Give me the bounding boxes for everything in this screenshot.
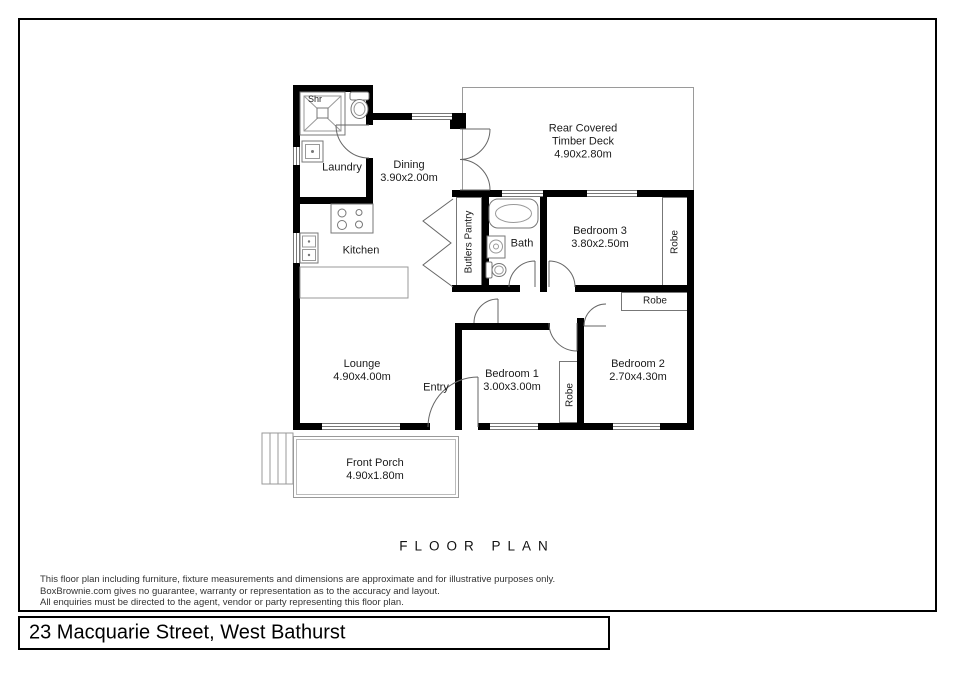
floor-plan-page: Shr Laundry Dining 3.90x2.00m Rear Cover… <box>0 0 955 675</box>
bedroom1-label: Bedroom 1 3.00x3.00m <box>483 368 540 394</box>
entry-label: Entry <box>423 382 449 395</box>
wall-segment <box>478 423 490 430</box>
laundry-label: Laundry <box>322 162 362 175</box>
lounge-label: Lounge 4.90x4.00m <box>333 358 390 384</box>
wall-segment <box>660 423 694 430</box>
butlers-pantry-label: Butlers Pantry <box>464 211 475 274</box>
wall-segment <box>575 285 694 292</box>
bedroom2-label: Bedroom 2 2.70x4.30m <box>609 358 666 384</box>
wall-segment <box>293 286 318 293</box>
wall-segment <box>455 323 550 330</box>
robe-bed1-label: Robe <box>565 383 576 407</box>
wall-segment <box>293 85 300 147</box>
disclaimer-line: BoxBrownie.com gives no guarantee, warra… <box>40 586 555 598</box>
robe-bed2-label: Robe <box>643 295 667 308</box>
page-title: FLOOR PLAN <box>399 539 555 554</box>
wall-segment <box>370 113 412 120</box>
wall-segment <box>540 197 547 292</box>
window <box>490 423 538 430</box>
disclaimer-line: All enquiries must be directed to the ag… <box>40 597 555 609</box>
wall-segment <box>293 85 373 92</box>
kitchen-label: Kitchen <box>343 245 380 258</box>
deck-label: Rear Covered Timber Deck 4.90x2.80m <box>549 123 617 162</box>
wall-segment <box>538 423 613 430</box>
wall-segment <box>452 285 520 292</box>
window <box>293 147 300 165</box>
wall-segment <box>687 190 694 430</box>
wall-segment <box>452 190 502 197</box>
window <box>293 233 300 263</box>
address-bar: 23 Macquarie Street, West Bathurst <box>18 616 610 650</box>
address-text: 23 Macquarie Street, West Bathurst <box>29 622 345 645</box>
shower-label: Shr <box>308 94 322 104</box>
window <box>322 423 400 430</box>
window <box>412 113 452 120</box>
window <box>613 423 660 430</box>
wall-segment <box>400 423 430 430</box>
wall-segment <box>543 190 587 197</box>
wall-segment <box>455 323 462 430</box>
window <box>587 190 637 197</box>
wall-segment <box>293 197 373 204</box>
wall-segment <box>577 318 584 430</box>
front-porch-label: Front Porch 4.90x1.80m <box>346 457 403 483</box>
bedroom3-label: Bedroom 3 3.80x2.50m <box>571 225 628 251</box>
wall-segment <box>293 423 322 430</box>
bath-label: Bath <box>511 238 534 251</box>
wall-segment <box>637 190 694 197</box>
window <box>502 190 543 197</box>
wall-segment <box>450 113 466 129</box>
disclaimer-line: This floor plan including furniture, fix… <box>40 574 555 586</box>
disclaimer-text: This floor plan including furniture, fix… <box>40 574 555 609</box>
dining-label: Dining 3.90x2.00m <box>380 159 437 185</box>
wall-segment <box>482 197 489 292</box>
robe-bed3-label: Robe <box>670 230 681 254</box>
